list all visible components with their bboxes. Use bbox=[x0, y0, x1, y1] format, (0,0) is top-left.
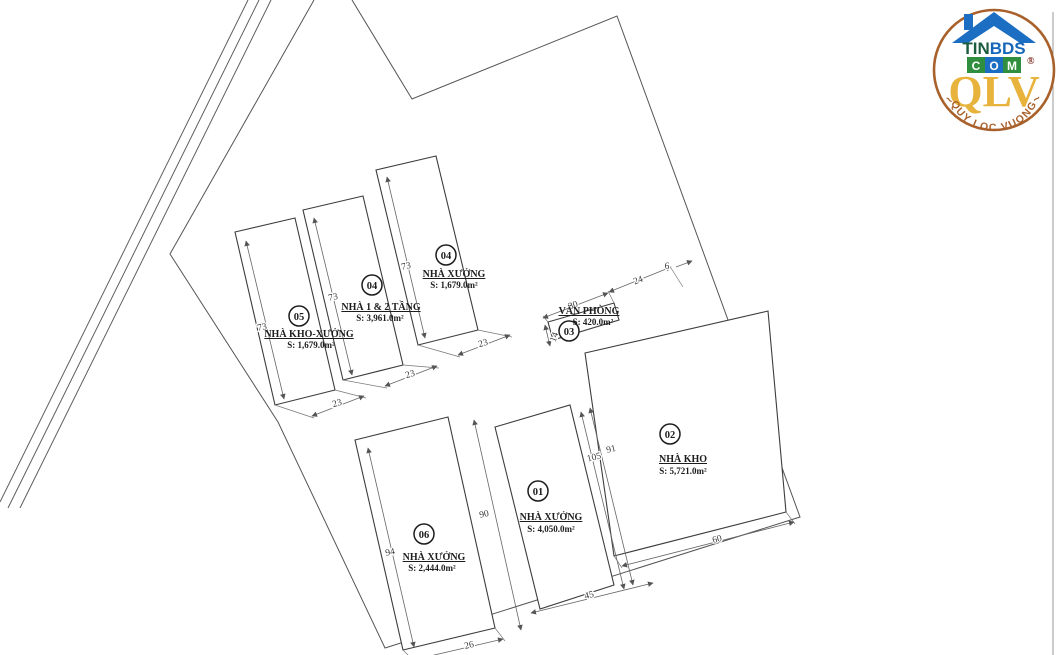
building-02-area: S: 5,721.0m² bbox=[659, 466, 707, 476]
logo-brand-blue: BDS bbox=[990, 39, 1026, 58]
building-06-area: S: 2,444.0m² bbox=[408, 563, 456, 573]
logo-registered-mark: ® bbox=[1027, 56, 1035, 67]
building-04a-area: S: 3,961.0m² bbox=[356, 313, 404, 323]
building-04b-area: S: 1,679.0m² bbox=[430, 280, 478, 290]
building-04b-number: 04 bbox=[441, 251, 452, 262]
building-02-number: 02 bbox=[665, 430, 676, 441]
building-04b-name: NHÀ XƯỞNG bbox=[423, 268, 486, 280]
building-05-area: S: 1,679.0m² bbox=[287, 340, 335, 350]
building-03-number: 03 bbox=[564, 327, 575, 338]
logo-brand-green: TIN bbox=[962, 39, 989, 58]
building-05-number: 05 bbox=[294, 312, 305, 323]
building-outlines bbox=[235, 156, 786, 650]
dim-b04b-bottom: 23 bbox=[477, 338, 489, 350]
building-01-number: 01 bbox=[533, 487, 544, 498]
building-02-name: NHÀ KHO bbox=[659, 453, 707, 465]
logo-brand-text: TINBDS bbox=[962, 39, 1025, 58]
building-01-name: NHÀ XƯỞNG bbox=[520, 511, 583, 523]
building-06-name: NHÀ XƯỞNG bbox=[403, 551, 466, 563]
dim-b02-bottom: 60 bbox=[711, 534, 723, 546]
site-plan-page: 73 73 73 23 23 23 94 90 105 91 60 45 26 … bbox=[0, 0, 1061, 655]
building-01-area: S: 4,050.0m² bbox=[527, 524, 575, 534]
building-03-area: S: 420.0m² bbox=[573, 317, 614, 327]
dim-b06-bottom: 26 bbox=[463, 640, 475, 652]
dim-b02-notch: 6 bbox=[665, 262, 670, 272]
building-01-outline bbox=[495, 405, 614, 609]
building-04a-name: NHÀ 1 & 2 TẦNG bbox=[341, 300, 420, 313]
site-plan-drawing: 73 73 73 23 23 23 94 90 105 91 60 45 26 … bbox=[0, 0, 1061, 655]
building-05-name: NHÀ KHO-XƯỞNG bbox=[264, 328, 354, 340]
company-logo: TINBDS C O M ® QLV QUY LOC VUONG ~ ~ bbox=[934, 10, 1054, 134]
building-02-outline bbox=[585, 311, 786, 556]
road-lines bbox=[0, 0, 271, 508]
dim-b02-top: 24 bbox=[632, 275, 645, 288]
building-06-number: 06 bbox=[419, 530, 430, 541]
dim-b04a-bottom: 23 bbox=[404, 369, 416, 381]
dim-b01-left: 90 bbox=[479, 509, 491, 521]
dim-b05-bottom: 23 bbox=[331, 398, 343, 410]
building-04a-number: 04 bbox=[367, 281, 378, 292]
building-03-name: VĂN PHÒNG bbox=[559, 305, 620, 317]
